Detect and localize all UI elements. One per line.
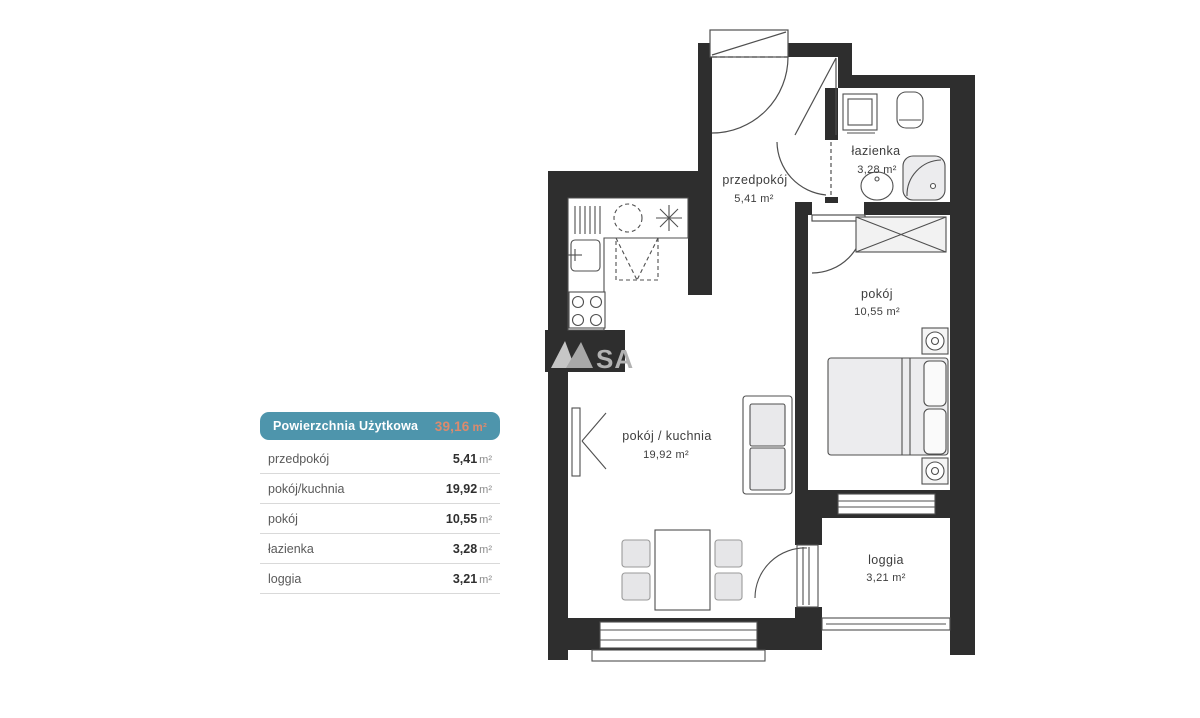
legend-header: Powierzchnia Użytkowa 39,16m² [260, 412, 500, 440]
entrance-door-arc [712, 57, 788, 133]
burner [573, 297, 584, 308]
room-area-value: 10,55 [446, 512, 477, 526]
bedside-lamp [922, 328, 948, 354]
sofa-cushion [750, 404, 785, 446]
room-label: pokój/kuchnia [268, 482, 344, 496]
room-area-value: 5,41 [453, 452, 477, 466]
legend-row-lazienka: łazienka 3,28m² [260, 534, 500, 564]
balcony-door-frame [797, 545, 818, 607]
chair [715, 540, 742, 567]
tv-view-line [582, 441, 606, 469]
room-area-unit: m² [479, 454, 492, 466]
watermark-text: SA [596, 344, 634, 374]
legend-row-loggia: loggia 3,21m² [260, 564, 500, 594]
legend-rows: przedpokój 5,41m² pokój/kuchnia 19,92m² … [260, 444, 500, 594]
legend-row-pokoj-kuchnia: pokój/kuchnia 19,92m² [260, 474, 500, 504]
floor-plan: SA [545, 28, 980, 676]
legend-row-przedpokoj: przedpokój 5,41m² [260, 444, 500, 474]
chair [622, 540, 650, 567]
room-area-przedpokoj: 5,41 m² [734, 193, 773, 205]
pillow [924, 409, 946, 454]
room-area-lazienka: 3,28 m² [857, 164, 896, 176]
kitchen [568, 198, 688, 330]
room-area-pokoj: 10,55 m² [854, 306, 900, 318]
pillow [924, 361, 946, 406]
washbasin [861, 172, 893, 200]
room-area-unit: m² [479, 544, 492, 556]
room-area-loggia: 3,21 m² [866, 572, 905, 584]
living-room-window [600, 622, 757, 648]
planned-appliance-dashed [616, 238, 658, 280]
toilet [897, 92, 923, 128]
room-label-przedpokoj: przedpokój [722, 173, 787, 187]
bedroom-loggia-window [838, 494, 935, 514]
room-label: loggia [268, 572, 301, 586]
room-area-pokoj-kuchnia: 19,92 m² [643, 449, 689, 461]
room-label: łazienka [268, 542, 314, 556]
room-label-loggia: loggia [868, 553, 904, 567]
shower [903, 156, 945, 200]
room-label: przedpokój [268, 452, 329, 466]
tv [572, 408, 580, 476]
legend-row-pokoj: pokój 10,55m² [260, 504, 500, 534]
area-legend: Powierzchnia Użytkowa 39,16m² przedpokój… [260, 412, 500, 594]
room-label-pokoj-kuchnia: pokój / kuchnia [622, 429, 711, 443]
bedside-lamp [922, 458, 948, 484]
room-area-unit: m² [479, 574, 492, 586]
room-label-pokoj: pokój [861, 287, 893, 301]
balcony-door [755, 545, 818, 607]
window-sill [592, 650, 765, 661]
tv-view-line [582, 413, 606, 441]
room-label-lazienka: łazienka [851, 144, 900, 158]
room-area-value: 3,21 [453, 572, 477, 586]
burner [591, 315, 602, 326]
room-area-value: 3,28 [453, 542, 477, 556]
burner [573, 315, 584, 326]
room-area-unit: m² [479, 514, 492, 526]
washing-machine-drum [848, 99, 872, 125]
room-label: pokój [268, 512, 298, 526]
total-area-unit: m² [473, 422, 487, 434]
dining-table [655, 530, 710, 610]
total-area-value: 39,16m² [435, 419, 487, 434]
entrance-door [710, 30, 788, 133]
bedroom [828, 217, 948, 484]
bathroom-door-arc [777, 142, 826, 195]
washbasin-tap [875, 177, 879, 181]
chair [622, 573, 650, 600]
burner [591, 297, 602, 308]
sofa-cushion [750, 448, 785, 490]
legend-title: Powierzchnia Użytkowa [273, 419, 418, 433]
room-area-value: 19,92 [446, 482, 477, 496]
shower-drain [931, 184, 936, 189]
chair [715, 573, 742, 600]
room-area-unit: m² [479, 484, 492, 496]
bathroom-door [777, 142, 831, 195]
